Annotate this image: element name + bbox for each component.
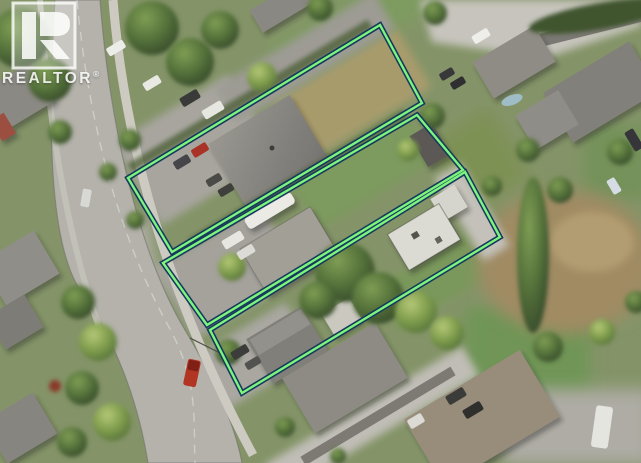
tree <box>589 319 615 345</box>
tree <box>430 316 464 350</box>
tree <box>275 417 295 437</box>
tree <box>28 58 72 102</box>
tree <box>126 211 144 229</box>
tree <box>65 371 99 405</box>
tree <box>125 1 179 55</box>
chimney <box>270 146 275 151</box>
tree <box>516 138 540 162</box>
tree <box>607 139 633 165</box>
hedge-column <box>517 177 549 333</box>
aerial-photo-viewport: REALTOR® <box>0 0 641 463</box>
tree <box>99 163 117 181</box>
tree <box>93 403 131 441</box>
tree <box>533 332 563 362</box>
tree <box>482 176 502 196</box>
aerial-photo <box>0 0 641 463</box>
tree <box>79 323 117 361</box>
tree <box>201 11 239 49</box>
tree <box>166 38 214 86</box>
tree <box>48 120 72 144</box>
tree <box>423 1 447 25</box>
tree <box>119 129 141 151</box>
tree <box>57 427 87 457</box>
tree <box>299 281 337 319</box>
tree <box>397 139 419 161</box>
tree <box>547 177 573 203</box>
tree <box>61 285 95 319</box>
red-shrub <box>49 380 61 392</box>
dirt-yard-light <box>550 212 634 272</box>
